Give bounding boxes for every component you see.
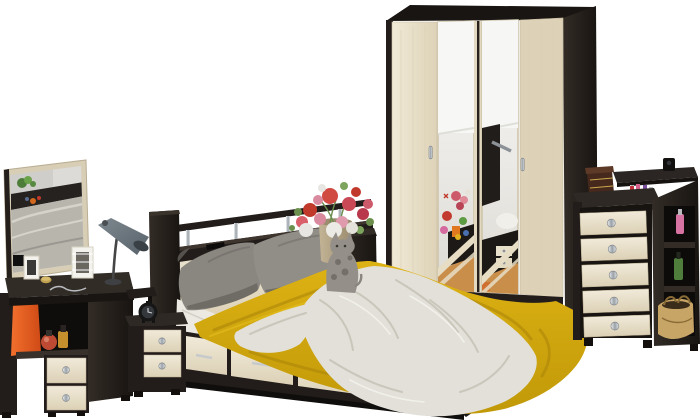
chest-foot bbox=[690, 344, 698, 351]
drawer-knob bbox=[611, 322, 619, 330]
chrome-post bbox=[286, 216, 290, 233]
wardrobe-handle-right bbox=[521, 158, 524, 171]
flower-bloom bbox=[357, 208, 369, 220]
flower-bloom bbox=[303, 203, 317, 217]
drawer-knob bbox=[159, 338, 165, 344]
shopping-bag bbox=[11, 298, 41, 356]
chest-foot bbox=[643, 340, 652, 348]
flower-bloom bbox=[363, 199, 373, 209]
drawer-knob bbox=[608, 245, 616, 253]
flower-bloom bbox=[346, 222, 358, 234]
wardrobe-handle-left bbox=[429, 146, 432, 159]
nightstand bbox=[125, 301, 188, 397]
handbag bbox=[658, 296, 694, 339]
drawer-knob bbox=[607, 219, 615, 227]
bedroom-set-photo bbox=[0, 0, 700, 420]
flower-bloom bbox=[318, 184, 326, 192]
chest-drawers bbox=[580, 211, 650, 337]
drawer-knob bbox=[609, 271, 617, 279]
flower-bloom bbox=[314, 213, 326, 225]
lamp-base bbox=[105, 279, 122, 285]
chest-of-drawers bbox=[573, 158, 700, 351]
desk-right-leg bbox=[88, 287, 133, 402]
flower-bloom bbox=[351, 187, 361, 197]
drawer-knob bbox=[610, 297, 618, 305]
drawer-knob bbox=[63, 395, 70, 402]
drawer-knob bbox=[159, 363, 165, 369]
drawer-knob bbox=[63, 367, 70, 374]
flower-bloom bbox=[299, 223, 313, 237]
flower-bloom bbox=[342, 197, 356, 211]
flower-bloom bbox=[313, 195, 323, 205]
scene-canvas bbox=[0, 0, 700, 420]
desk-drawer-unit bbox=[44, 355, 89, 417]
chrome-post bbox=[234, 223, 238, 241]
chest-foot bbox=[584, 338, 593, 346]
wooden-box bbox=[585, 166, 614, 195]
